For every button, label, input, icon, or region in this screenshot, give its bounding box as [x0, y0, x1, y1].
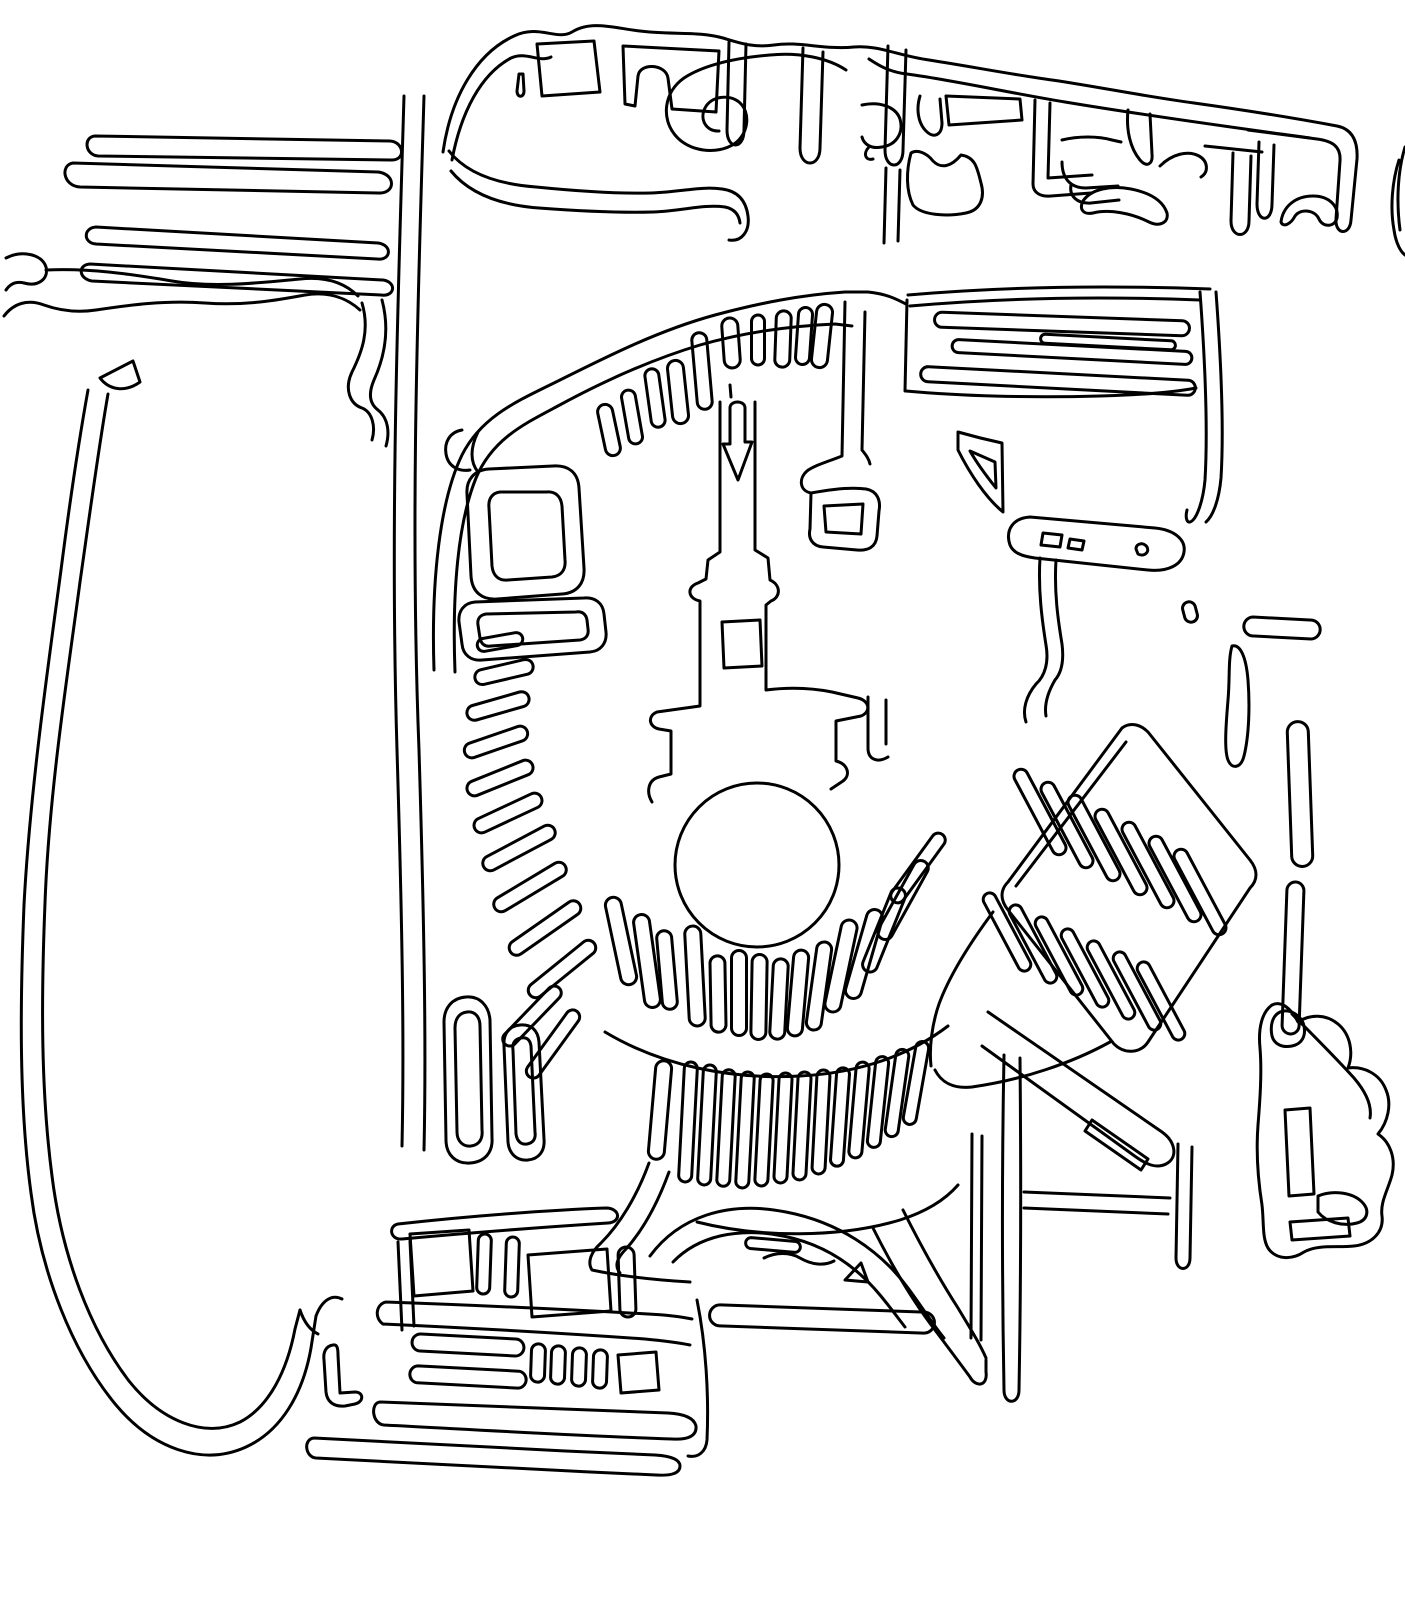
- box-slat-a5: [1122, 822, 1174, 908]
- right-vert-capsule: [1003, 1055, 1021, 1401]
- right-bent-stick: [1226, 646, 1249, 767]
- right-hbar: [1244, 617, 1320, 639]
- channel-b: [415, 96, 425, 1150]
- fin-top-2: [621, 390, 642, 444]
- base-right-edge: [688, 1300, 708, 1456]
- box-slat-b3: [1035, 917, 1083, 995]
- frame-slat-b: [505, 1237, 520, 1297]
- arch-small-bar: [746, 1238, 801, 1253]
- rail-maze-stem: [884, 168, 900, 243]
- base-capsule-2-inner: [513, 1038, 535, 1144]
- frame-box-2: [528, 1249, 611, 1317]
- fin-outer-5: [755, 1074, 773, 1186]
- rail-t-curve: [1160, 153, 1206, 177]
- loop-junction: [300, 1297, 342, 1334]
- chute-right: [935, 1042, 1110, 1087]
- base-capsule-1-outer: [444, 997, 492, 1163]
- b-blob-hole-2: [1285, 1108, 1314, 1196]
- fin-bottom-5: [710, 956, 726, 1032]
- fin-top-4: [667, 360, 688, 423]
- fin-left-3: [464, 726, 527, 758]
- rail-slot-rect: [623, 46, 719, 112]
- fin-outer-9: [831, 1068, 850, 1166]
- handle-drop: [1024, 558, 1062, 722]
- fin-top-1: [598, 404, 621, 455]
- band-right-2: [1206, 292, 1222, 522]
- rail-tooth-4: [1257, 142, 1274, 218]
- rail-maze-shelf: [1033, 100, 1092, 196]
- fin-outer-7: [793, 1072, 811, 1180]
- right-bar-1: [1287, 722, 1312, 867]
- fin-bottom-6: [732, 951, 747, 1036]
- fin-bottom-2: [634, 915, 661, 1008]
- left-strip-2: [65, 163, 392, 193]
- rail-maze-box: [907, 151, 982, 215]
- fin-dash: [730, 385, 731, 397]
- rail-t-slot: [1205, 146, 1262, 235]
- box-slat-b4: [1061, 929, 1109, 1007]
- box-slat-a4: [1095, 809, 1147, 894]
- rail-slot-trapezoid: [537, 41, 600, 96]
- loop-blob: [100, 361, 140, 389]
- base-capsule-1-inner: [455, 1012, 482, 1146]
- fin-outer-0: [648, 1061, 671, 1159]
- fin-outer-8: [812, 1070, 830, 1174]
- right-square-loop: [810, 488, 880, 550]
- fin-bottom-13: [863, 888, 906, 972]
- fin-left-5: [474, 793, 542, 833]
- base-l-capsule: [324, 1345, 362, 1406]
- arch-squiggle: [764, 1254, 834, 1265]
- box-slat-a6: [1149, 836, 1201, 921]
- frame-box-1: [410, 1230, 473, 1296]
- lower-frame-inner: [478, 612, 588, 646]
- rail-y-slot: [1128, 110, 1153, 164]
- rotor-bore: [675, 783, 839, 947]
- band-stripe-4: [921, 367, 1196, 396]
- left-wiggle: [348, 300, 388, 446]
- line-art-stage: [0, 0, 1405, 1600]
- loop-inner: [43, 394, 300, 1428]
- rail-c-curve: [1281, 196, 1337, 225]
- rail-wave-1: [449, 151, 722, 193]
- vent-box: [618, 1352, 659, 1393]
- band-stripe-1: [935, 312, 1190, 335]
- rail-tooth-2: [800, 48, 823, 163]
- vent-slat-1: [531, 1344, 546, 1382]
- fin-left-1: [475, 659, 533, 684]
- arch-inner: [673, 1233, 905, 1327]
- left-strip-3: [86, 227, 388, 259]
- vent-slat-3: [572, 1348, 587, 1386]
- box-slat-a7: [1174, 849, 1226, 934]
- flag: [958, 432, 1003, 512]
- spout-inner: [971, 1134, 982, 1340]
- fin-bottom-8: [770, 959, 788, 1039]
- right-arm-bits: [868, 697, 888, 760]
- bottom-bar-1: [374, 1402, 696, 1439]
- fin-outer-4: [736, 1072, 754, 1188]
- l-piece-horizontal: [1024, 1192, 1170, 1214]
- fin-top-10: [811, 304, 832, 367]
- rail-maze-mushroom: [918, 96, 942, 135]
- left-strip-4: [81, 264, 392, 295]
- box-slat-b6: [1113, 952, 1161, 1030]
- line-art-canvas: [0, 0, 1405, 1600]
- fin-outer-2: [698, 1065, 717, 1185]
- fin-outer-6: [774, 1073, 792, 1183]
- hub-outline: [649, 402, 868, 802]
- fin-bottom-1: [605, 897, 636, 984]
- top-rail-inner-left: [452, 56, 551, 160]
- fin-bottom-7: [751, 955, 767, 1040]
- loop-outer: [21, 390, 316, 1455]
- fin-top-8: [775, 311, 791, 367]
- fin-top-3: [645, 369, 665, 427]
- band-left: [905, 300, 907, 391]
- rail-droop: [722, 189, 748, 240]
- right-oval: [1183, 602, 1198, 622]
- fin-left-8: [509, 901, 581, 955]
- left-strip-1: [87, 136, 402, 160]
- l-piece-vertical: [1176, 1144, 1192, 1269]
- fin-left-6: [483, 825, 555, 871]
- fin-left-11: [526, 1010, 579, 1078]
- vent-slat-4: [593, 1350, 608, 1388]
- spectacle-inner: [489, 492, 565, 580]
- fin-left-nub: [477, 633, 522, 652]
- base-bar-inner-2: [410, 1366, 526, 1388]
- mid-bar: [377, 1302, 692, 1345]
- fin-top-6: [722, 318, 740, 368]
- rail-maze-hook: [862, 104, 901, 160]
- bottom-bar-2: [307, 1438, 680, 1475]
- vent-slat-2: [551, 1346, 566, 1384]
- handle-holes: [1041, 533, 1148, 555]
- fin-outer-3: [717, 1070, 735, 1186]
- frame-slat-a: [477, 1234, 492, 1294]
- handle-bar: [1009, 517, 1185, 570]
- base-bar-inner-1: [412, 1334, 524, 1356]
- band-stripe-3: [1041, 334, 1176, 350]
- channel-a: [394, 96, 404, 1146]
- box-slat-b5: [1087, 941, 1135, 1019]
- diag-bar: [982, 1012, 1174, 1166]
- b-blob-hole-3: [1290, 1218, 1350, 1240]
- fin-left-4: [467, 760, 533, 796]
- band-top-2: [910, 298, 1200, 306]
- fin-top-9: [795, 308, 812, 365]
- rail-maze-slot: [946, 96, 1022, 125]
- chute-left: [930, 912, 993, 1066]
- fin-top-7: [752, 315, 765, 365]
- fin-outer-10: [849, 1062, 869, 1158]
- hub-hole: [722, 620, 762, 668]
- fin-bottom-4: [685, 926, 705, 1026]
- fin-left-7: [494, 862, 567, 912]
- box-slat-b7: [1137, 962, 1185, 1040]
- top-rail-inner-right: [869, 59, 1310, 138]
- fin-left-9: [528, 940, 595, 997]
- far-right-edge: [1392, 147, 1405, 255]
- fin-left-2: [467, 692, 529, 721]
- right-square-hole: [824, 504, 863, 534]
- band-top-1: [908, 287, 1210, 295]
- fin-outer-1: [679, 1062, 698, 1182]
- scroll-inner: [454, 324, 852, 672]
- rail-c-bar: [1081, 188, 1167, 225]
- spout-right: [903, 1210, 986, 1358]
- hub-arrow-slot: [723, 402, 752, 480]
- rail-slot-pin: [517, 74, 524, 96]
